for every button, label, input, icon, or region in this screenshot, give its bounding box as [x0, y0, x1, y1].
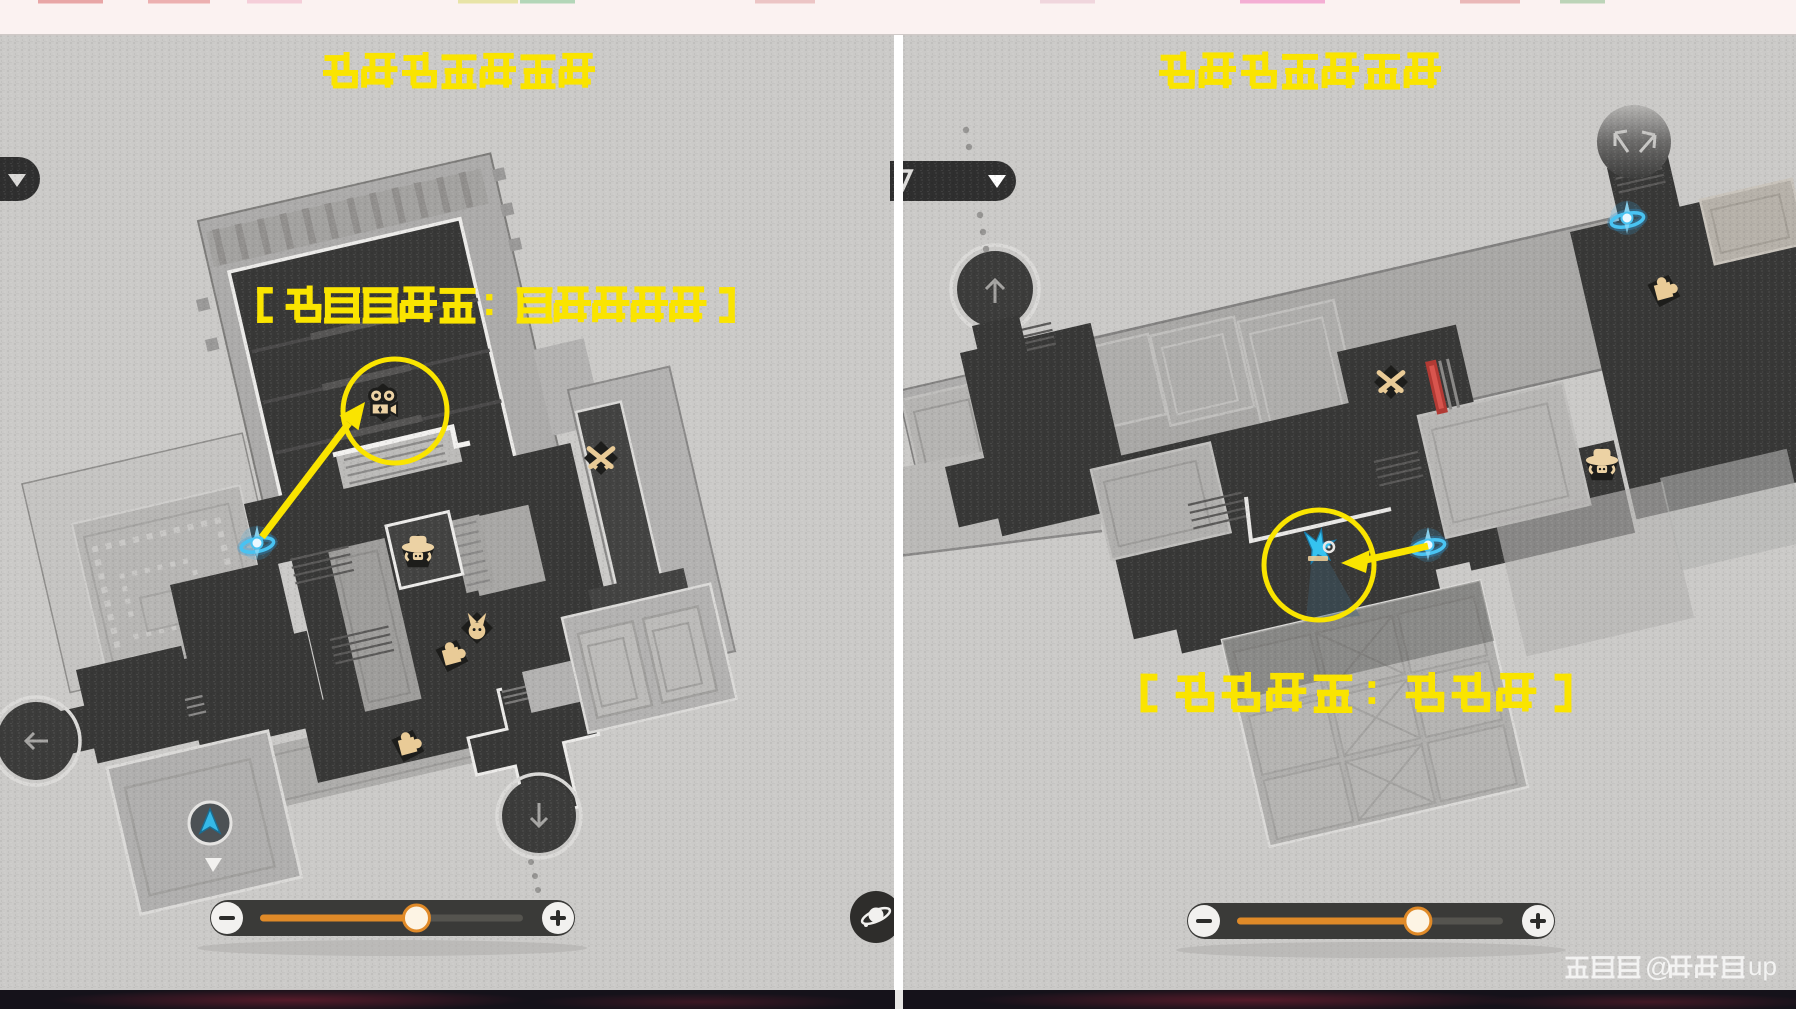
svg-text:up: up [1748, 951, 1777, 981]
svg-text:@: @ [1645, 952, 1672, 982]
